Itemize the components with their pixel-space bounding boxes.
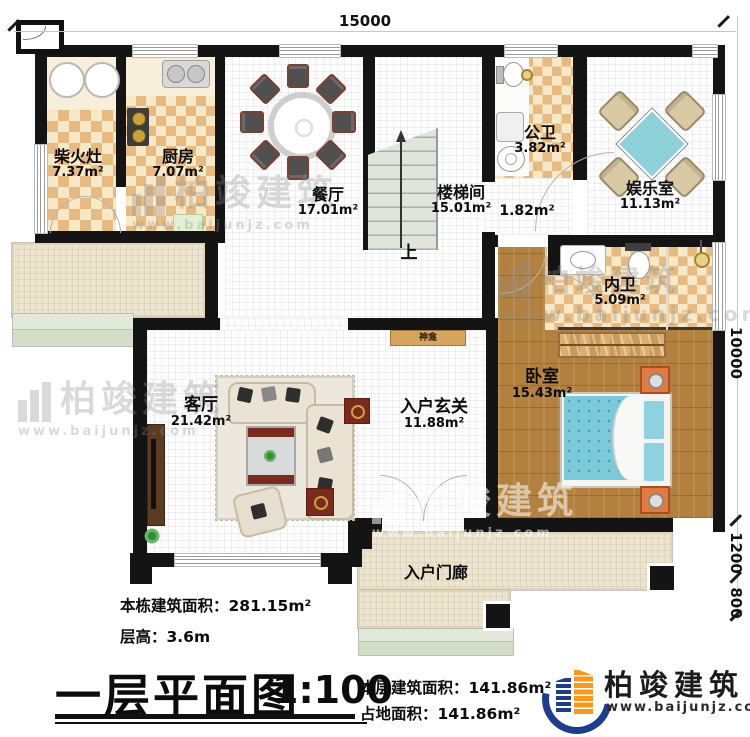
company-logo: 柏竣建筑 www.baijunjz.com — [540, 656, 746, 730]
wall-terrace-east — [205, 243, 218, 330]
room-label-foyer: 入户玄关11.88m² — [382, 398, 486, 432]
wall-living-west — [133, 318, 147, 566]
window-kitchen-north — [133, 45, 197, 57]
column-porch-west — [350, 518, 372, 549]
tv-cabinet — [147, 424, 165, 526]
dimension-top-width: 15000 — [320, 12, 410, 30]
wardrobe-rail — [560, 344, 664, 346]
wall-foyer-north — [348, 318, 498, 330]
window-bath-north — [505, 45, 557, 57]
dining-chair — [332, 111, 356, 133]
side-table-1 — [344, 398, 370, 424]
room-label-public-bath: 公卫3.82m² — [508, 124, 572, 156]
floor-area-text: 本层建筑面积：141.86m² — [360, 676, 551, 698]
logo-brand-text: 柏竣建筑 — [604, 662, 744, 704]
stairs-direction-line — [400, 142, 402, 248]
side-table-2 — [306, 488, 334, 516]
kitchen-range — [127, 108, 149, 146]
column-porch-east — [650, 566, 674, 590]
watermark-logo-icon — [372, 484, 406, 524]
floor-connector — [220, 318, 348, 330]
kitchen-sink — [162, 60, 210, 88]
watermark-logo-icon — [18, 382, 52, 422]
armchair-pillow — [250, 503, 267, 520]
room-label-stairwell: 楼梯间15.01m² — [418, 184, 504, 216]
dimension-right-steps: 800 — [727, 573, 745, 633]
room-label-kitchen: 厨房7.07m² — [142, 148, 214, 180]
side-table-ring — [351, 405, 365, 419]
terrace-step-2 — [12, 329, 134, 347]
nightstand-2 — [640, 486, 670, 514]
porch-step-2 — [358, 641, 514, 656]
dimension-right-main: 10000 — [727, 323, 745, 383]
floor-plan-page: 上 — [0, 0, 750, 737]
stairs-up-label: 上 — [394, 244, 424, 263]
room-label-porch: 入户门廊 — [384, 564, 488, 582]
room-label-bedroom: 卧室15.43m² — [498, 368, 586, 402]
room-label-dining: 餐厅17.01m² — [282, 186, 374, 218]
terrace-floor — [12, 243, 205, 317]
wall-ensuite-south — [558, 327, 713, 330]
sink-bowl-2 — [187, 65, 205, 83]
logo-url-text: www.baijunjz.com — [606, 700, 750, 715]
sofa-pillow — [285, 387, 301, 403]
wood-stove-2 — [84, 62, 120, 98]
stairs-arrow-head — [396, 130, 406, 142]
sofa-pillow — [261, 386, 277, 402]
ensuite-toilet-tank — [625, 243, 651, 251]
burner-2 — [132, 129, 146, 143]
table-plant — [263, 449, 277, 463]
coffee-table — [246, 426, 296, 486]
column-living-se — [328, 553, 352, 584]
dim-tick — [717, 15, 729, 27]
watermark-logo-icon — [132, 176, 166, 216]
chimney — [16, 20, 64, 54]
wall-mid-south-a — [482, 235, 498, 247]
bed-pillow-2 — [642, 441, 666, 483]
dining-table-center — [295, 119, 313, 137]
window-entertainment-east — [713, 95, 725, 180]
floor-height-text: 层高：3.6m — [120, 625, 210, 647]
room-label-firewood-stove: 柴火灶7.37m² — [36, 148, 120, 180]
wood-stove-1 — [49, 62, 85, 98]
watermark: 柏竣建筑 www.baijunjz.com — [372, 472, 578, 541]
chimney-flue — [23, 26, 46, 40]
footprint-area-text: 占地面积：141.86m² — [360, 702, 520, 724]
bed-blanket — [612, 396, 644, 480]
title-underline-thin — [55, 722, 367, 724]
column-porch-south — [486, 604, 510, 628]
floor-plant — [144, 528, 160, 544]
window-corner-north — [693, 45, 717, 57]
window-living-south — [175, 554, 320, 566]
title-underline-thick — [55, 714, 355, 719]
dining-chair — [287, 64, 309, 88]
nightstand-lamp — [648, 493, 664, 509]
side-table-ring — [314, 496, 328, 510]
bed-pillow-1 — [642, 399, 666, 441]
room-label-entertainment: 娱乐室11.13m² — [602, 180, 698, 212]
logo-building-blue-icon — [556, 676, 571, 712]
dining-chair — [240, 111, 264, 133]
window-dining-north — [280, 45, 340, 57]
room-label-living: 客厅21.42m² — [162, 396, 240, 430]
coffee-table-trim-bottom — [248, 475, 294, 484]
wall-stair-east-upper — [482, 57, 495, 182]
watermark-logo-icon — [498, 260, 532, 300]
burner-1 — [132, 112, 146, 126]
wardrobe — [558, 332, 666, 358]
coffee-table-trim-top — [248, 428, 294, 437]
column-living-sw — [130, 553, 152, 584]
nightstand-lamp — [648, 373, 664, 389]
room-label-corridor: 1.82m² — [496, 204, 558, 220]
building-total-area-text: 本栋建筑面积：281.15m² — [120, 594, 311, 616]
nightstand-1 — [640, 366, 670, 394]
valve-icon — [521, 69, 533, 81]
dimension-line-top — [14, 31, 736, 32]
tv-screen — [151, 439, 156, 509]
sink-bowl-1 — [167, 65, 185, 83]
shrine: 神龛 — [390, 330, 466, 346]
logo-building-orange-icon — [574, 668, 593, 714]
room-label-ensuite: 内卫5.09m² — [584, 276, 656, 308]
